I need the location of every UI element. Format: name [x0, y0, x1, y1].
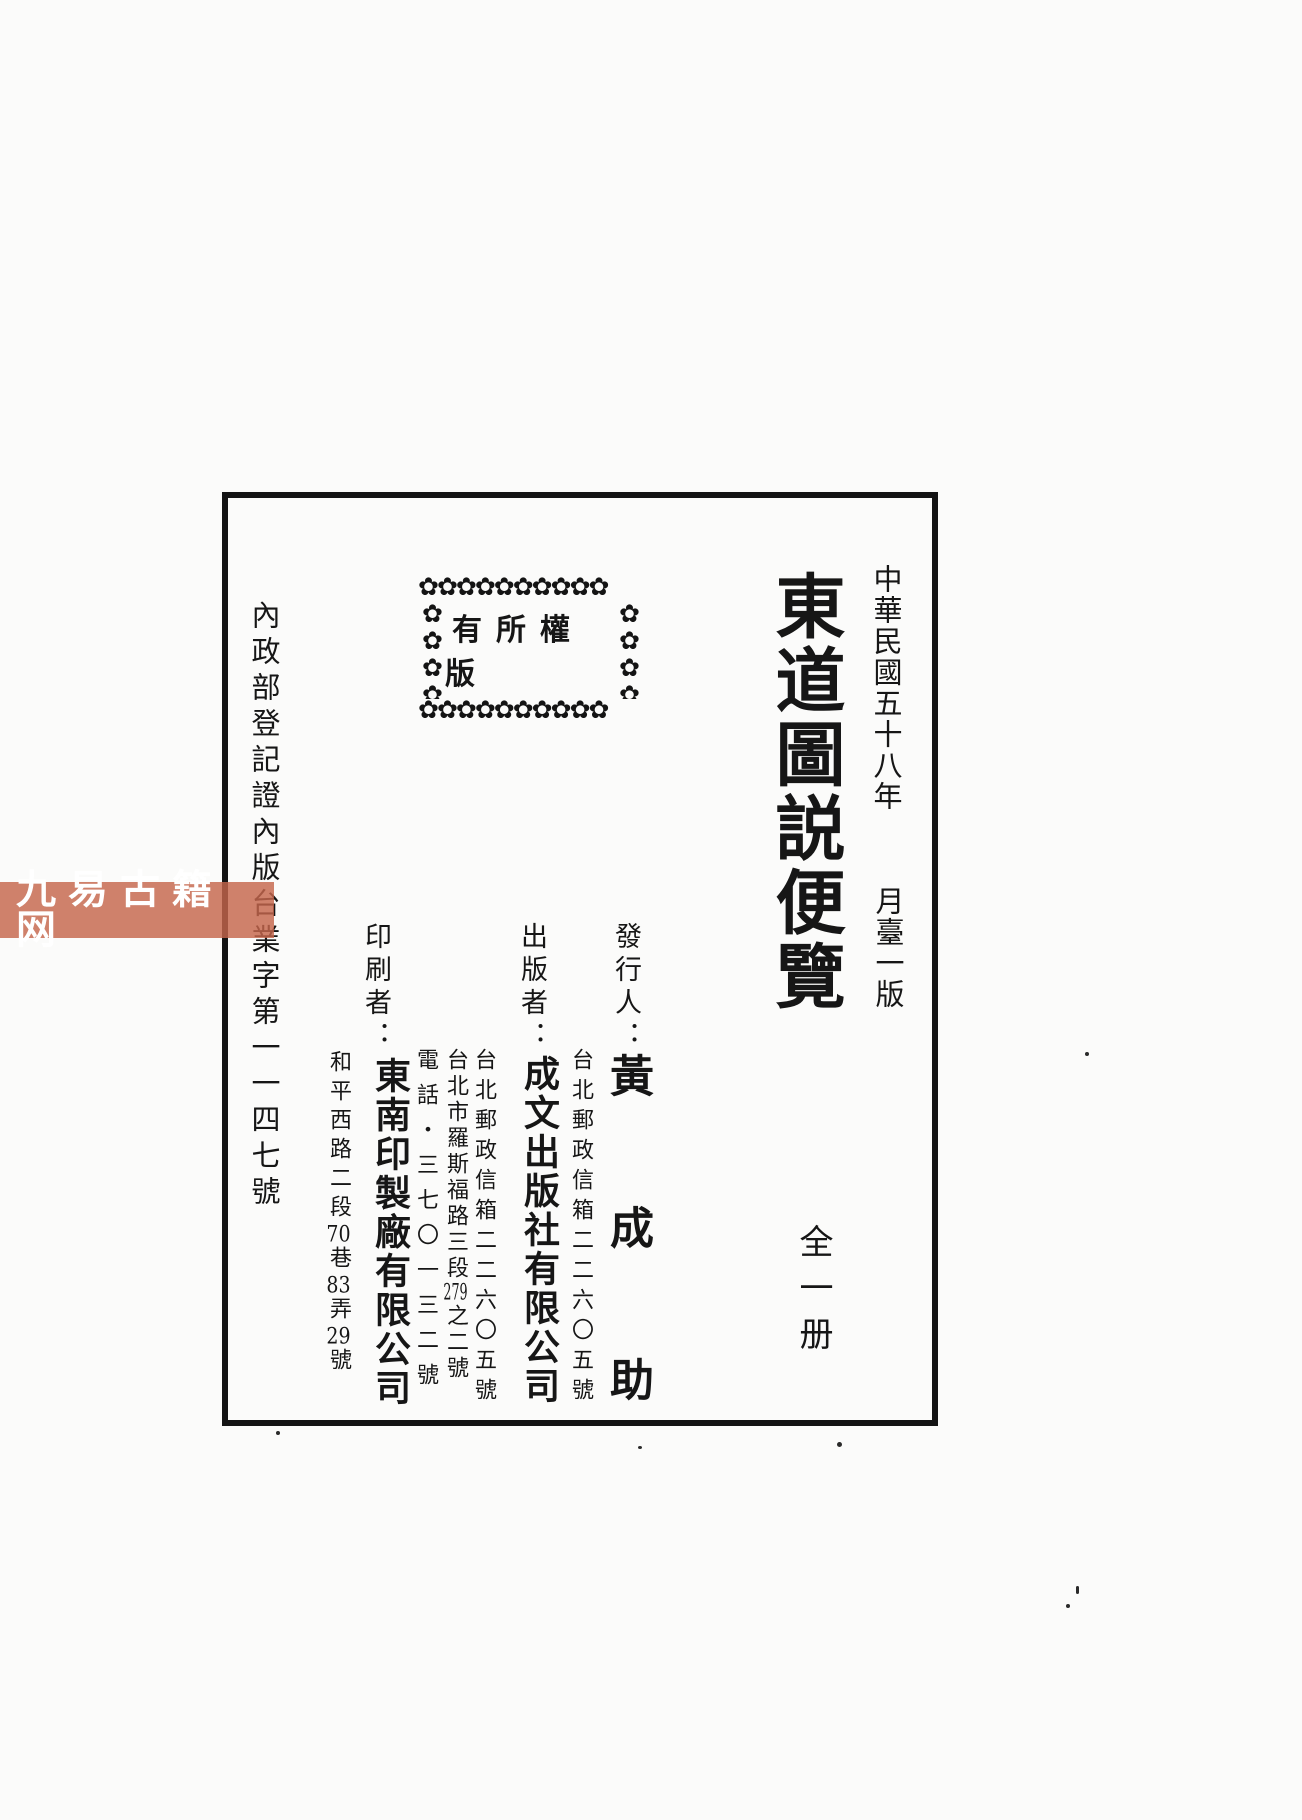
- site-watermark: 九易古籍网: [0, 882, 274, 938]
- copyright-stamp: 有所權版: [418, 574, 642, 724]
- edition-column: 月臺一版: [873, 886, 902, 1010]
- phone-number: 電話・三七〇一三二號: [414, 1048, 436, 1398]
- printer-address: 和平西路二段70巷83弄29號: [327, 1050, 349, 1377]
- ink-speck: [1085, 1052, 1089, 1056]
- ink-speck: [638, 1446, 642, 1449]
- book-title: 東道圖説便覽: [770, 570, 840, 1014]
- street-number: 279: [443, 1282, 468, 1304]
- printer-address-alley: 弄: [326, 1297, 351, 1326]
- printer-address-number-suffix: 號: [326, 1348, 351, 1377]
- publisher-name: 成文出版社有限公司: [521, 1055, 557, 1406]
- publisher-street-address: 台北市羅斯福路三段279之二號: [444, 1048, 466, 1382]
- printer-address-alley-number: 83: [326, 1275, 351, 1297]
- scanned-book-page: { "document": { "era_date": "中華民國五十八年", …: [0, 0, 1302, 1820]
- stamp-text: 有所權版: [445, 601, 615, 697]
- printer-address-lane-number: 70: [326, 1224, 351, 1246]
- site-watermark-text: 九易古籍网: [16, 870, 274, 950]
- volume-note: 全一册: [796, 1224, 830, 1362]
- printer-address-house-number: 29: [326, 1326, 351, 1348]
- printer-name: 東南印製廠有限公司: [372, 1057, 408, 1408]
- printer-address-lane: 巷: [326, 1246, 351, 1275]
- ink-speck: [1066, 1604, 1070, 1608]
- issuer-label: 發行人：: [612, 922, 639, 1054]
- street-suffix: 之二號: [443, 1304, 468, 1382]
- stamp-floral-border-right: [615, 599, 642, 699]
- issuer-address: 台北郵政信箱二二六〇五號: [569, 1048, 591, 1408]
- stamp-floral-border-left: [418, 599, 445, 699]
- era-date-column: 中華民國五十八年: [871, 564, 900, 812]
- street-prefix: 台北市羅斯福路三段: [443, 1048, 468, 1282]
- stamp-floral-border-top: [418, 574, 642, 601]
- issuer-name: 黃成助: [605, 1053, 649, 1509]
- stamp-floral-border-bottom: [418, 697, 642, 724]
- ink-speck: [1076, 1586, 1079, 1594]
- publisher-po-box: 台北郵政信箱二二六〇五號: [472, 1048, 494, 1408]
- ink-speck: [837, 1442, 842, 1447]
- printer-address-street: 和平西路二段: [326, 1050, 351, 1224]
- printer-label: 印刷者：: [362, 922, 389, 1054]
- ink-speck: [276, 1431, 280, 1435]
- publisher-label: 出版者：: [518, 922, 545, 1054]
